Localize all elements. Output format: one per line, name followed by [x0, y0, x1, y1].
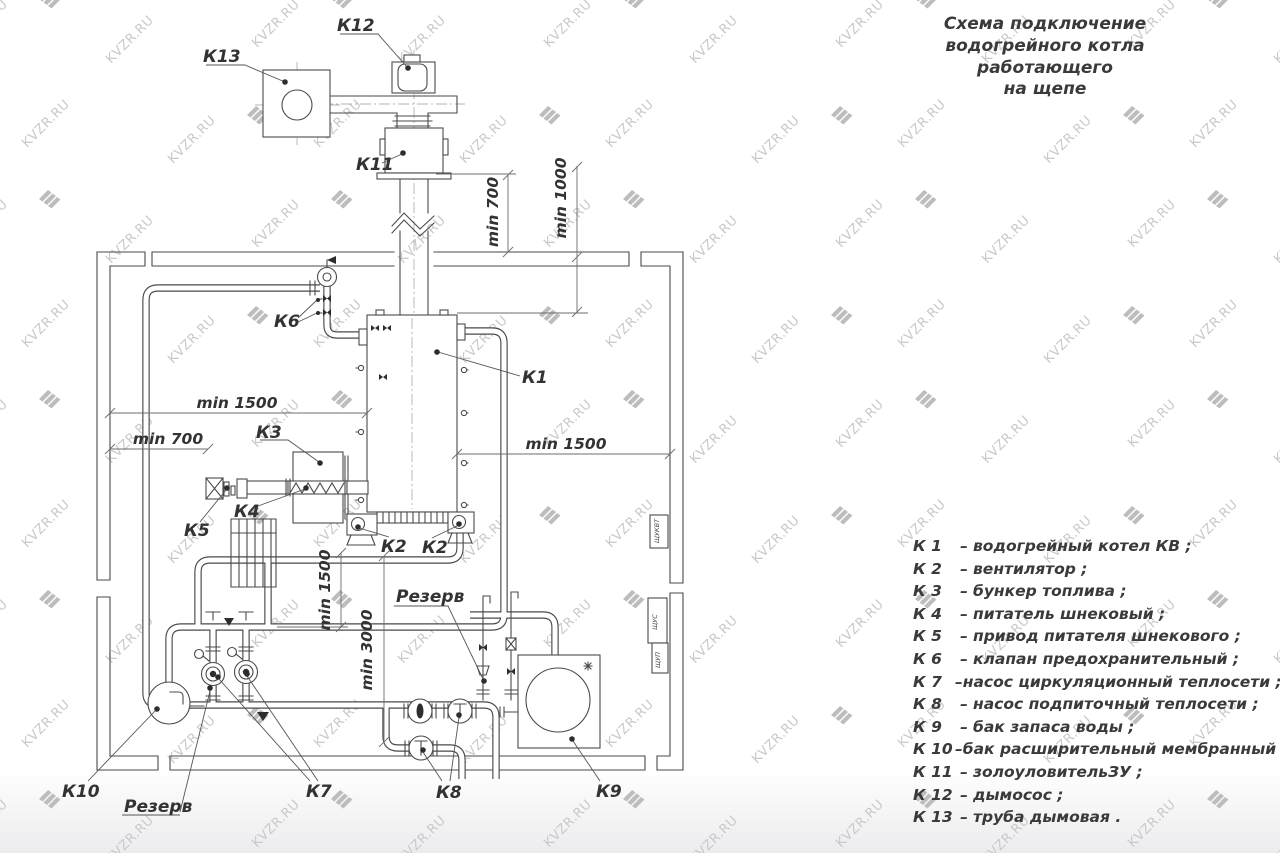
watermark-hatch-icon [623, 390, 645, 409]
watermark-hatch-icon [623, 190, 645, 209]
watermark-hatch-icon [1123, 106, 1145, 125]
dim-min1500-left: min 1500 [196, 394, 277, 412]
watermark-hatch-icon [39, 390, 61, 409]
watermark-hatch-icon [1207, 190, 1229, 209]
watermark-text: KVZR.RU [311, 297, 365, 351]
watermark-text: KVZR.RU [833, 597, 887, 651]
watermark-text: KVZR.RU [103, 813, 157, 853]
label-k2a: К2 [381, 537, 407, 557]
watermark-hatch-icon [331, 790, 353, 809]
watermark-hatch-icon [831, 306, 853, 325]
watermark-hatch-icon [1207, 390, 1229, 409]
watermark-text: KVZR.RU [895, 297, 949, 351]
watermark-hatch-icon [331, 390, 353, 409]
label-k5: К5 [184, 521, 210, 541]
watermark-text: KVZR.RU [833, 0, 887, 51]
watermark-text: KVZR.RU [603, 697, 657, 751]
watermark-hatch-icon [915, 190, 937, 209]
watermark-hatch-icon [247, 306, 269, 325]
watermark-text: KVZR.RU [749, 713, 803, 767]
boiler-k1 [356, 310, 468, 523]
watermark-text: KVZR.RU [1187, 297, 1241, 351]
watermark-hatch-icon [623, 0, 645, 9]
watermark-text: KVZR.RU [249, 0, 303, 51]
legend-item: К 7–насос циркуляционный теплосети ; [913, 673, 1263, 696]
label-reserve-top: Резерв [396, 587, 465, 607]
dim-min1000: min 1000 [552, 157, 570, 238]
watermark-text: KVZR.RU [541, 797, 595, 851]
watermark-text: KVZR.RU [603, 297, 657, 351]
legend-item: К 2–вентилятор ; [913, 560, 1263, 583]
watermark-hatch-icon [831, 706, 853, 725]
watermark-hatch-icon [1207, 0, 1229, 9]
watermark-text: KVZR.RU [1271, 813, 1280, 853]
panel-label-1: ЩУКВТ [653, 518, 661, 543]
watermark-text: KVZR.RU [833, 797, 887, 851]
label-k3: К3 [256, 423, 282, 443]
watermark-text: KVZR.RU [749, 313, 803, 367]
watermark-text: KVZR.RU [103, 13, 157, 67]
watermark-hatch-icon [331, 0, 353, 9]
watermark-hatch-icon [39, 590, 61, 609]
watermark-text: KVZR.RU [1271, 613, 1280, 667]
watermark-hatch-icon [1123, 506, 1145, 525]
watermark-hatch-icon [331, 190, 353, 209]
watermark-text: KVZR.RU [541, 0, 595, 51]
watermark-text: KVZR.RU [687, 13, 741, 67]
legend-item: К 9–бак запаса воды ; [913, 718, 1263, 741]
label-k8: К8 [436, 783, 462, 803]
watermark-hatch-icon [539, 506, 561, 525]
label-k12: К12 [337, 16, 375, 36]
watermark-text: KVZR.RU [103, 213, 157, 267]
watermark-text: KVZR.RU [19, 497, 73, 551]
watermark-text: KVZR.RU [249, 797, 303, 851]
watermark-hatch-icon [539, 306, 561, 325]
watermark-hatch-icon [831, 506, 853, 525]
watermark-hatch-icon [39, 190, 61, 209]
watermark-text: KVZR.RU [165, 313, 219, 367]
boiler-connection-scheme: KVZR.RUKVZR.RUKVZR.RUKVZR.RUKVZR.RUKVZR.… [0, 0, 1280, 853]
watermark-text: KVZR.RU [0, 397, 11, 451]
legend-item: К 6–клапан предохранительный ; [913, 650, 1263, 673]
watermark-text: KVZR.RU [395, 13, 449, 67]
watermark-text: KVZR.RU [1271, 413, 1280, 467]
watermark-text: KVZR.RU [687, 413, 741, 467]
label-k13: К13 [203, 47, 241, 67]
watermark-text: KVZR.RU [0, 797, 11, 851]
legend-item: К 8–насос подпиточный теплосети ; [913, 695, 1263, 718]
legend-item: К 4–питатель шнековый ; [913, 605, 1263, 628]
watermark-text: KVZR.RU [541, 597, 595, 651]
watermark-hatch-icon [831, 106, 853, 125]
watermark-text: KVZR.RU [1041, 313, 1095, 367]
watermark-text: KVZR.RU [833, 397, 887, 451]
label-k9: К9 [596, 782, 622, 802]
watermark-text: KVZR.RU [603, 97, 657, 151]
control-panels: ЩУКВТ ЩУС ЩУП [648, 515, 668, 673]
watermark-text: KVZR.RU [19, 297, 73, 351]
legend-item: К 10–бак расширительный мембранный ; [913, 740, 1263, 763]
watermark-hatch-icon [539, 106, 561, 125]
ash-pan-hatch [377, 512, 448, 523]
watermark-hatch-icon [39, 0, 61, 9]
watermark-text: KVZR.RU [19, 697, 73, 751]
watermark-hatch-icon [1123, 306, 1145, 325]
panel-label-2: ЩУС [651, 614, 659, 630]
label-reserve-bottom: Резерв [124, 797, 193, 817]
watermark-text: KVZR.RU [749, 113, 803, 167]
legend-item: К 1–водогрейный котел КВ ; [913, 537, 1263, 560]
watermark-hatch-icon [915, 390, 937, 409]
label-k2b: К2 [422, 538, 448, 558]
label-k4: К4 [234, 502, 260, 522]
title-line-3: на щепе [880, 79, 1210, 101]
legend-item: К 3–бункер топлива ; [913, 582, 1263, 605]
legend-item: К 12–дымосос ; [913, 786, 1263, 809]
title-line-2: водогрейного котла работающего [880, 36, 1210, 80]
watermark-text: KVZR.RU [1271, 213, 1280, 267]
watermark-text: KVZR.RU [249, 197, 303, 251]
label-k10: К10 [62, 782, 100, 802]
legend-item: К 5–привод питателя шнекового ; [913, 627, 1263, 650]
watermark-text: KVZR.RU [1125, 397, 1179, 451]
makeup-valves [477, 592, 518, 700]
dim-min700-top: min 700 [484, 177, 502, 247]
watermark-text: KVZR.RU [0, 597, 11, 651]
watermark-text: KVZR.RU [19, 97, 73, 151]
watermark-text: KVZR.RU [1187, 97, 1241, 151]
watermark-text: KVZR.RU [165, 113, 219, 167]
watermark-text: KVZR.RU [0, 197, 11, 251]
fan-k2-left [347, 514, 377, 545]
watermark-hatch-icon [623, 590, 645, 609]
smoke-exhauster-k12 [392, 55, 435, 128]
watermark-text: KVZR.RU [687, 613, 741, 667]
dim-min700-left: min 700 [133, 430, 203, 448]
watermark-text: KVZR.RU [395, 813, 449, 853]
drawing-title: Схема подключение водогрейного котла раб… [880, 14, 1210, 101]
label-k6: К6 [274, 312, 300, 332]
watermark-text: KVZR.RU [395, 613, 449, 667]
watermark-text: KVZR.RU [603, 497, 657, 551]
label-k11: К11 [356, 155, 394, 175]
watermark-text: KVZR.RU [1041, 113, 1095, 167]
dim-min1500-right: min 1500 [525, 435, 606, 453]
watermark-text: KVZR.RU [457, 113, 511, 167]
dim-min1500-vert: min 1500 [316, 549, 334, 630]
watermark-text: KVZR.RU [687, 213, 741, 267]
watermark-text: KVZR.RU [687, 813, 741, 853]
watermark-hatch-icon [331, 590, 353, 609]
watermark-hatch-icon [39, 790, 61, 809]
legend: К 1–водогрейный котел КВ ; К 2–вентилято… [913, 537, 1263, 831]
watermark-text: KVZR.RU [1271, 13, 1280, 67]
watermark-text: KVZR.RU [979, 413, 1033, 467]
label-k1: К1 [522, 368, 548, 388]
legend-item: К 11–золоуловительЗУ ; [913, 763, 1263, 786]
legend-item: К 13–труба дымовая . [913, 808, 1263, 831]
label-k7: К7 [306, 782, 332, 802]
watermark-text: KVZR.RU [833, 197, 887, 251]
title-line-1: Схема подключение [880, 14, 1210, 36]
panel-label-3: ЩУП [654, 652, 662, 668]
watermark-text: KVZR.RU [749, 513, 803, 567]
watermark-text: KVZR.RU [0, 0, 11, 51]
watermark-text: KVZR.RU [895, 97, 949, 151]
watermark-hatch-icon [915, 0, 937, 9]
watermark-text: KVZR.RU [1125, 197, 1179, 251]
watermark-hatch-icon [623, 790, 645, 809]
watermark-text: KVZR.RU [979, 213, 1033, 267]
dim-min3000: min 3000 [358, 609, 376, 690]
